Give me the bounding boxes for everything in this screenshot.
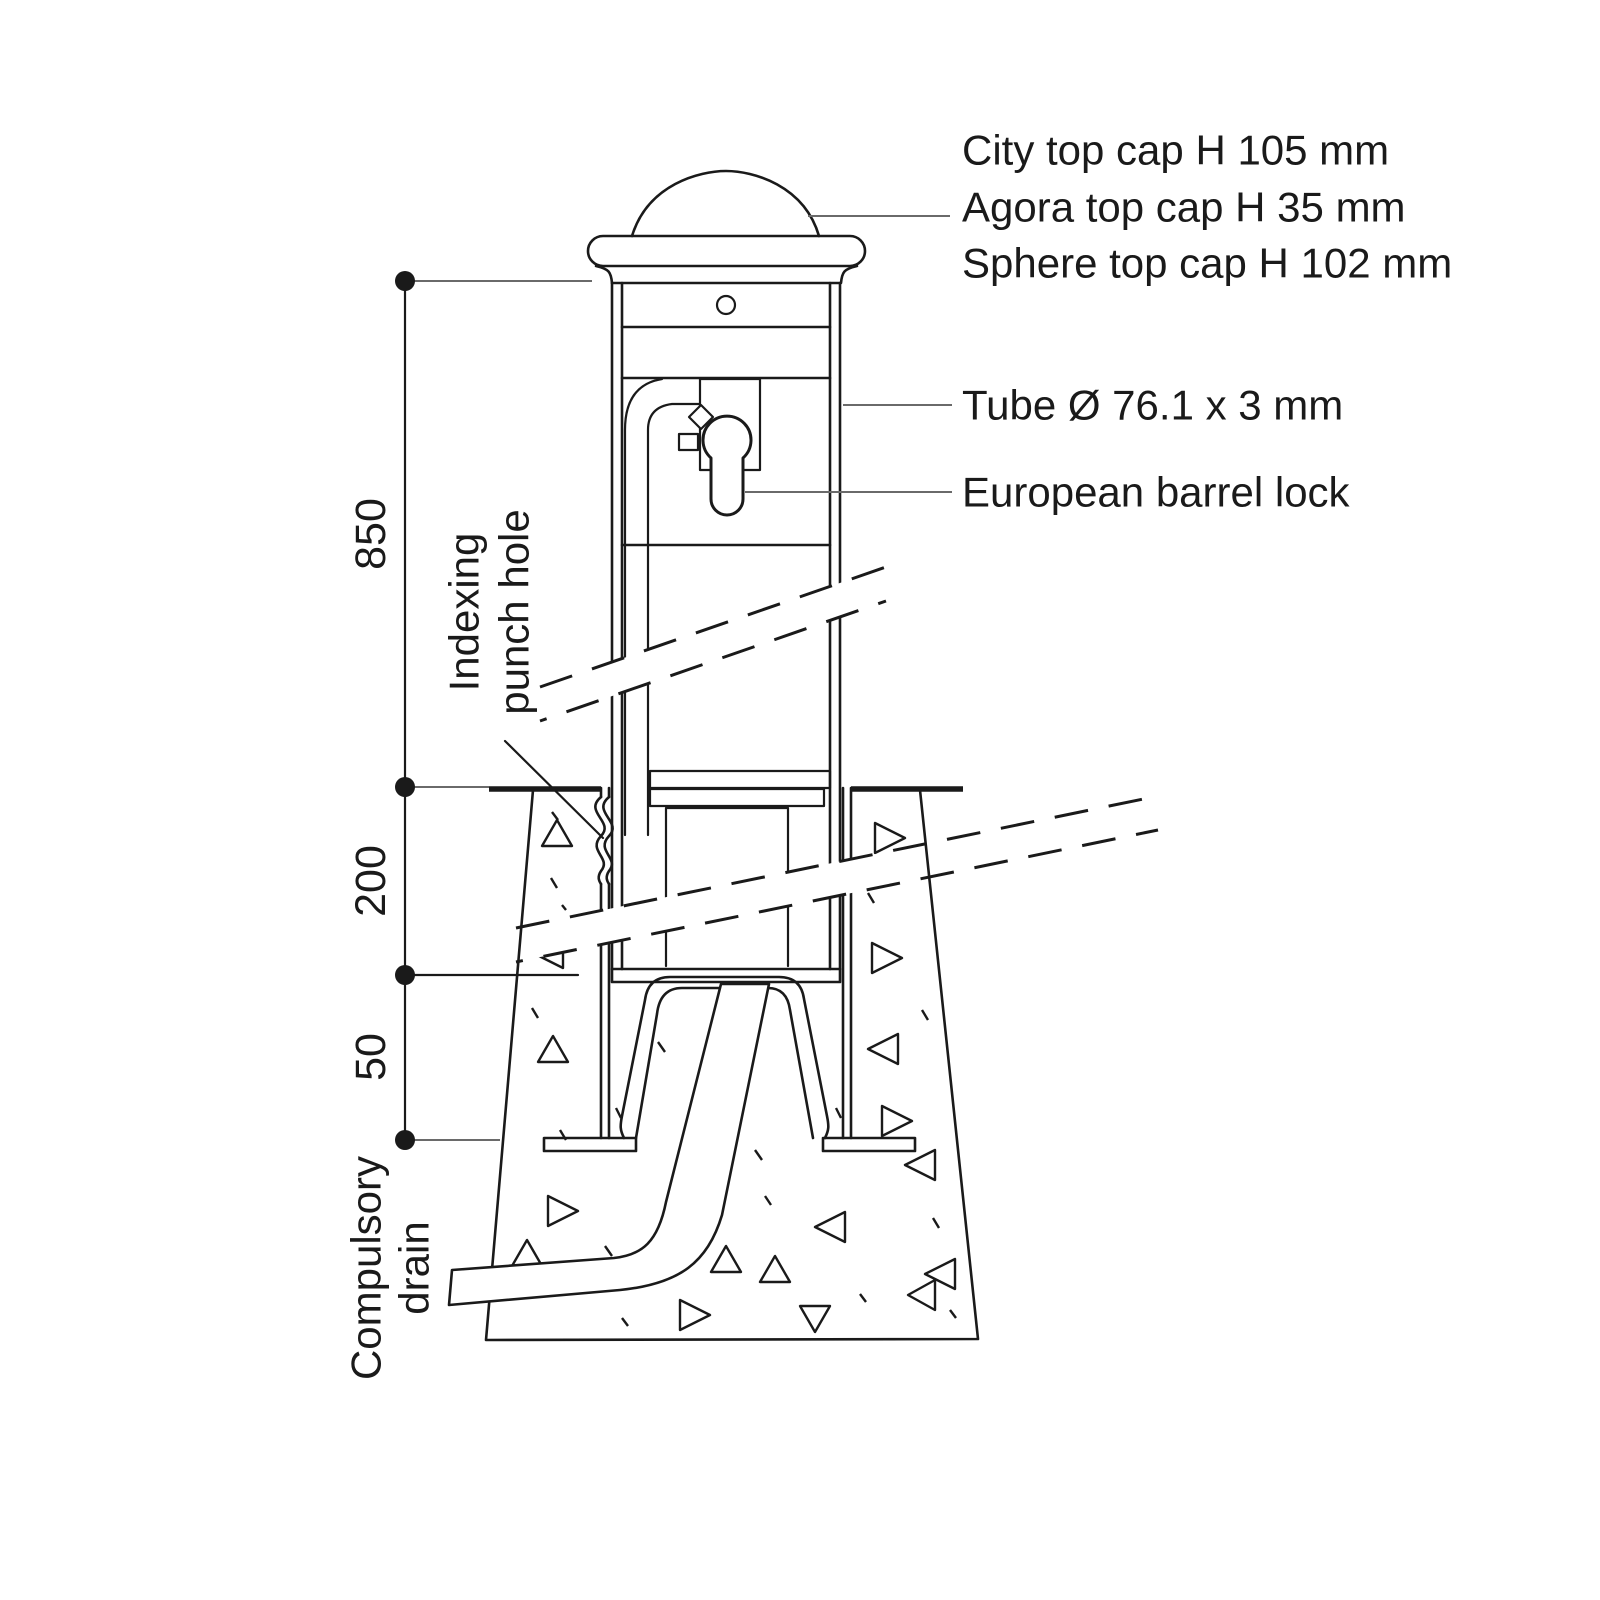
leader-lines <box>505 216 952 838</box>
flange-plates <box>650 771 830 806</box>
bollard-cap <box>588 171 865 283</box>
bollard-bottom-plate <box>612 969 840 982</box>
dim-50: 50 <box>347 1033 395 1081</box>
diagram-canvas: City top cap H 105 mm Agora top cap H 35… <box>0 0 1600 1600</box>
tube-label: Tube Ø 76.1 x 3 mm <box>962 382 1343 429</box>
break-line-upper <box>540 567 886 721</box>
sleeve-right-wall <box>843 788 851 1138</box>
top-fixing-hole <box>717 296 735 314</box>
dim-node-bottom <box>395 1130 415 1150</box>
cap-collar <box>588 236 865 266</box>
bollard-body <box>588 171 865 969</box>
dim-200: 200 <box>347 845 395 917</box>
lock-assembly <box>625 379 760 835</box>
lock-rod-conduit <box>625 379 662 835</box>
cap-label-agora: Agora top cap H 35 mm <box>962 184 1406 231</box>
euro-barrel-keyhole <box>703 416 751 515</box>
sleeve-left-wall <box>595 788 612 1138</box>
dim-850: 850 <box>347 498 395 570</box>
cap-neck <box>596 266 857 283</box>
dim-node-mid <box>395 965 415 985</box>
cap-dome <box>632 171 819 236</box>
lock-label: European barrel lock <box>962 469 1351 516</box>
dim-node-ground <box>395 777 415 797</box>
labels: City top cap H 105 mm Agora top cap H 35… <box>343 127 1453 1381</box>
cap-label-city: City top cap H 105 mm <box>962 127 1389 174</box>
drain-label-line1: Compulsory <box>343 1156 390 1380</box>
cap-label-sphere: Sphere top cap H 102 mm <box>962 240 1452 287</box>
drain-label-line2: drain <box>391 1221 438 1314</box>
lock-latch-block <box>679 434 698 450</box>
bollard-installation-diagram: City top cap H 105 mm Agora top cap H 35… <box>0 0 1600 1600</box>
indexing-label-line2: punch hole <box>491 509 538 715</box>
dim-node-top <box>395 271 415 291</box>
indexing-label-line1: Indexing <box>441 533 488 692</box>
